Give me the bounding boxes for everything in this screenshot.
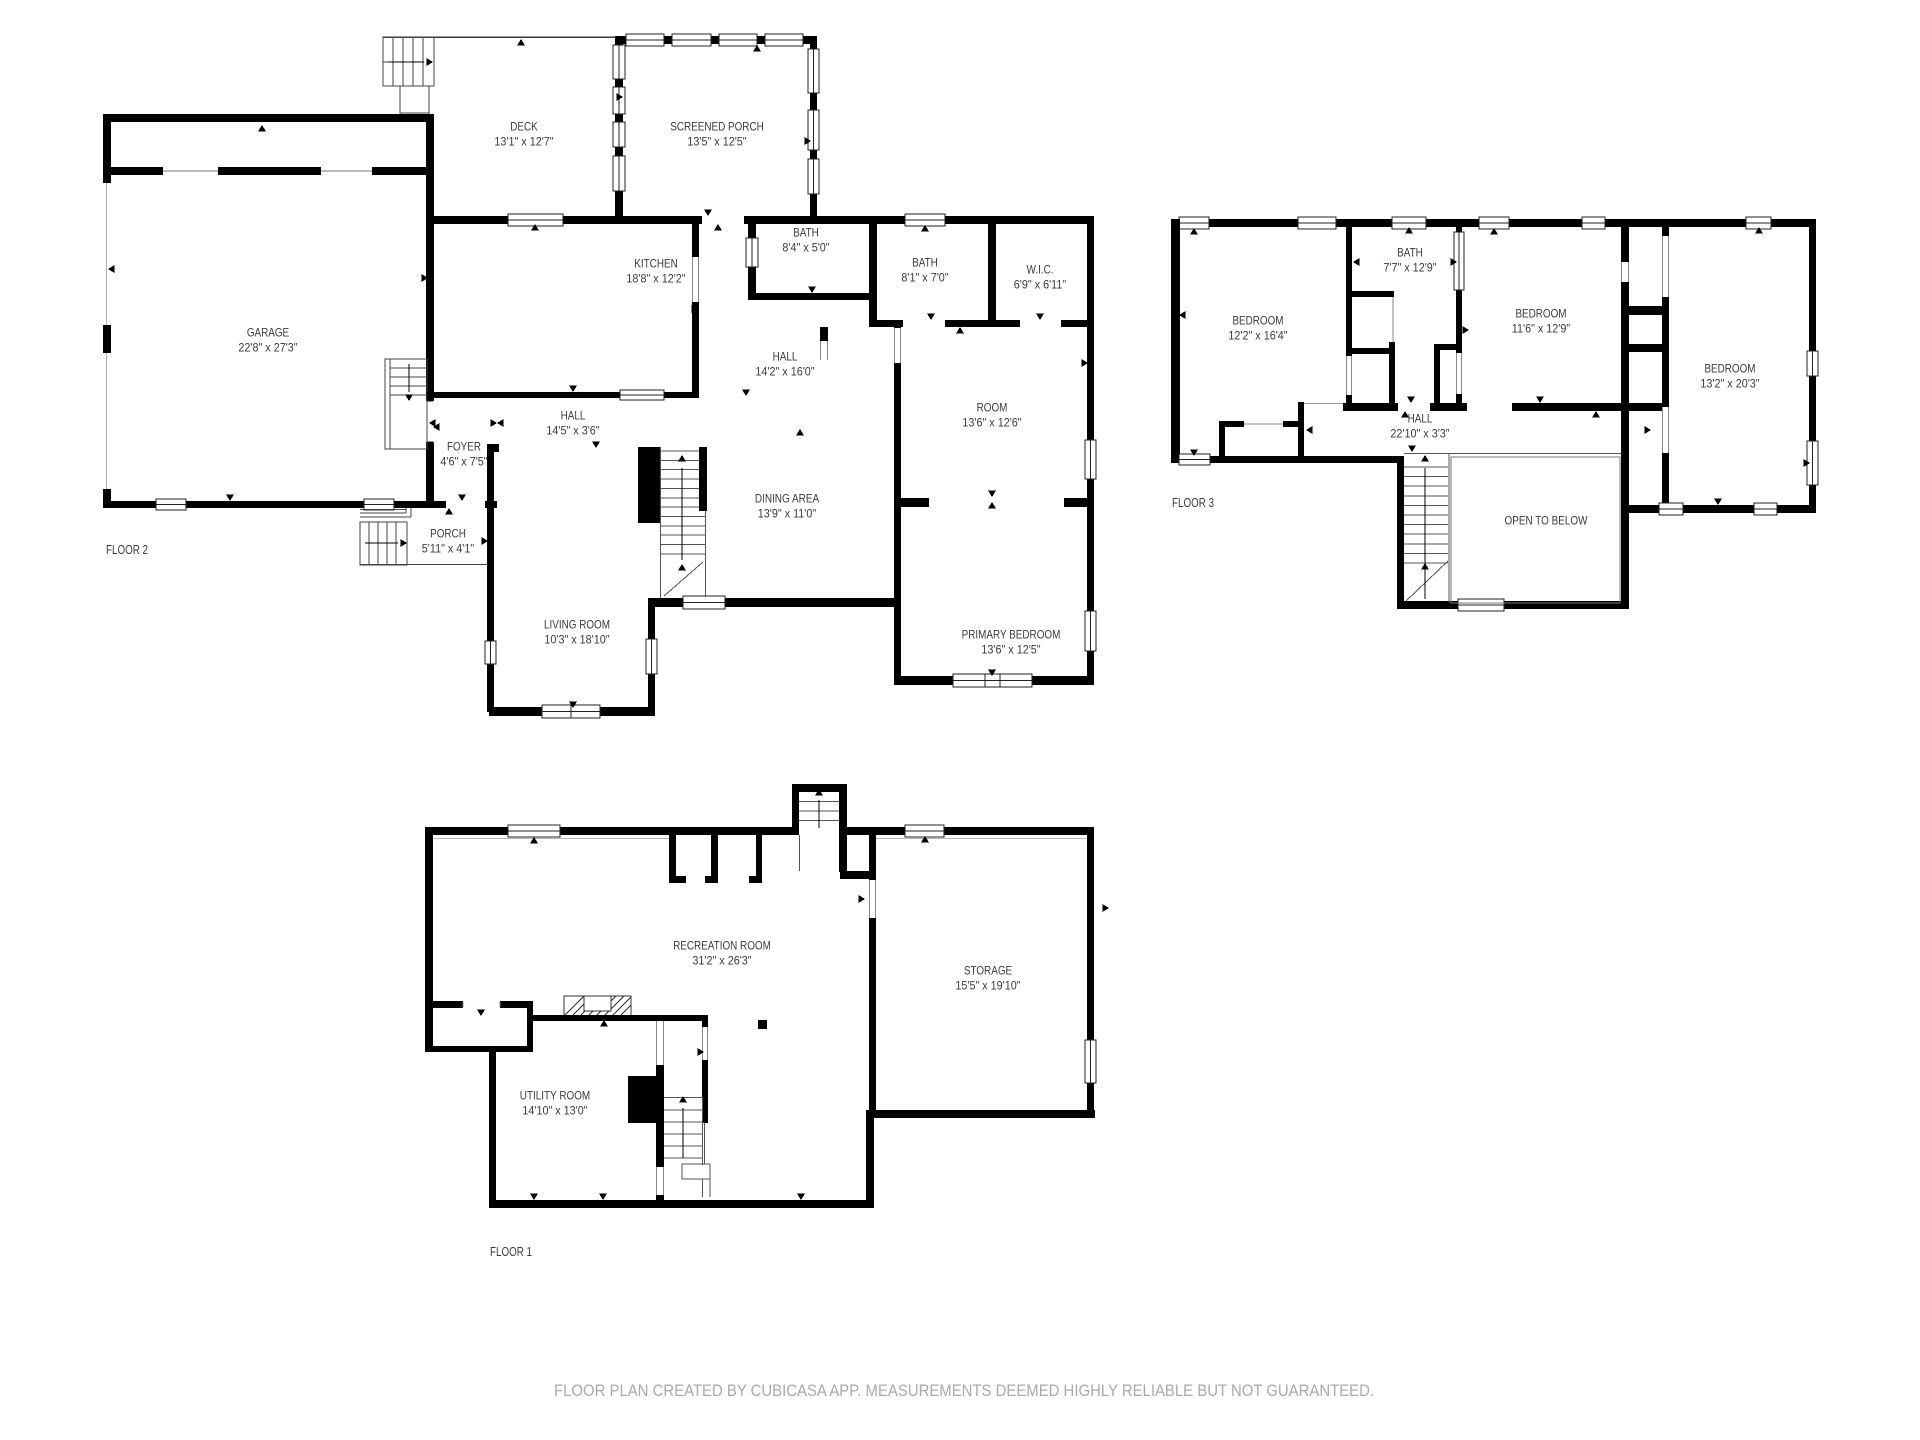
svg-text:HALL: HALL bbox=[1408, 411, 1433, 425]
svg-text:HALL: HALL bbox=[773, 349, 798, 363]
svg-text:8'4" x 5'0": 8'4" x 5'0" bbox=[782, 240, 829, 254]
svg-text:FLOOR PLAN CREATED BY CUBICASA: FLOOR PLAN CREATED BY CUBICASA APP. MEAS… bbox=[554, 1382, 1374, 1400]
svg-text:FLOOR 2: FLOOR 2 bbox=[106, 542, 148, 557]
svg-text:6'9" x 6'11": 6'9" x 6'11" bbox=[1014, 277, 1066, 291]
svg-text:13'5" x 12'5": 13'5" x 12'5" bbox=[687, 134, 746, 148]
svg-text:15'5" x 19'10": 15'5" x 19'10" bbox=[955, 978, 1020, 992]
svg-text:BEDROOM: BEDROOM bbox=[1515, 306, 1566, 320]
svg-text:SCREENED PORCH: SCREENED PORCH bbox=[670, 119, 764, 133]
svg-text:8'1" x 7'0": 8'1" x 7'0" bbox=[901, 270, 948, 284]
svg-text:13'2" x 20'3": 13'2" x 20'3" bbox=[1700, 376, 1759, 390]
svg-text:14'2" x 16'0": 14'2" x 16'0" bbox=[755, 364, 814, 378]
svg-text:12'2" x 16'4": 12'2" x 16'4" bbox=[1228, 328, 1287, 342]
svg-text:UTILITY ROOM: UTILITY ROOM bbox=[520, 1088, 590, 1102]
svg-text:LIVING ROOM: LIVING ROOM bbox=[544, 617, 610, 631]
svg-text:W.I.C.: W.I.C. bbox=[1027, 262, 1054, 276]
svg-text:14'10" x 13'0": 14'10" x 13'0" bbox=[522, 1103, 587, 1117]
svg-text:PORCH: PORCH bbox=[430, 526, 466, 540]
svg-text:13'6" x 12'6": 13'6" x 12'6" bbox=[962, 415, 1021, 429]
svg-text:FLOOR 1: FLOOR 1 bbox=[490, 1244, 532, 1259]
svg-text:STORAGE: STORAGE bbox=[964, 963, 1012, 977]
svg-text:11'6" x 12'9": 11'6" x 12'9" bbox=[1512, 321, 1570, 335]
svg-text:HALL: HALL bbox=[561, 408, 586, 422]
svg-text:KITCHEN: KITCHEN bbox=[634, 256, 678, 270]
svg-text:14'5" x 3'6": 14'5" x 3'6" bbox=[546, 423, 599, 437]
svg-text:OPEN TO BELOW: OPEN TO BELOW bbox=[1505, 513, 1588, 527]
svg-text:GARAGE: GARAGE bbox=[247, 325, 289, 339]
svg-text:PRIMARY BEDROOM: PRIMARY BEDROOM bbox=[962, 627, 1061, 641]
svg-text:13'6" x 12'5": 13'6" x 12'5" bbox=[981, 642, 1040, 656]
svg-text:BATH: BATH bbox=[1397, 245, 1423, 259]
svg-text:RECREATION ROOM: RECREATION ROOM bbox=[673, 938, 771, 952]
svg-text:ROOM: ROOM bbox=[977, 400, 1008, 414]
svg-text:BATH: BATH bbox=[793, 225, 819, 239]
svg-text:BEDROOM: BEDROOM bbox=[1232, 313, 1283, 327]
svg-text:BATH: BATH bbox=[912, 255, 938, 269]
svg-text:DECK: DECK bbox=[510, 119, 538, 133]
svg-text:22'10" x 3'3": 22'10" x 3'3" bbox=[1390, 426, 1449, 440]
svg-text:FOYER: FOYER bbox=[447, 439, 481, 453]
svg-text:FLOOR 3: FLOOR 3 bbox=[1172, 495, 1214, 510]
svg-text:DINING AREA: DINING AREA bbox=[755, 491, 819, 505]
svg-text:BEDROOM: BEDROOM bbox=[1704, 361, 1755, 375]
svg-text:5'11" x 4'1": 5'11" x 4'1" bbox=[422, 541, 474, 555]
svg-text:31'2" x 26'3": 31'2" x 26'3" bbox=[692, 953, 751, 967]
svg-text:13'1" x 12'7": 13'1" x 12'7" bbox=[494, 134, 553, 148]
svg-text:4'6" x 7'5": 4'6" x 7'5" bbox=[440, 454, 487, 468]
svg-text:13'9" x 11'0": 13'9" x 11'0" bbox=[758, 506, 816, 520]
svg-text:22'8" x 27'3": 22'8" x 27'3" bbox=[238, 340, 297, 354]
svg-text:10'3" x 18'10": 10'3" x 18'10" bbox=[544, 632, 609, 646]
svg-text:7'7" x 12'9": 7'7" x 12'9" bbox=[1383, 260, 1436, 274]
svg-text:18'8" x 12'2": 18'8" x 12'2" bbox=[626, 271, 685, 285]
